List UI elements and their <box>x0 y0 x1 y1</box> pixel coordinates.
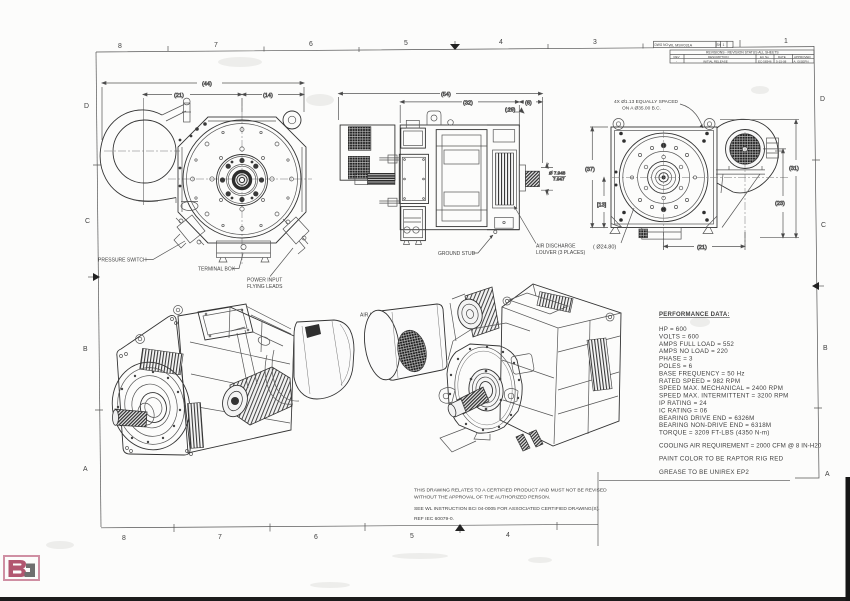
svg-text:IC RATING = 06: IC RATING = 06 <box>659 407 708 414</box>
svg-text:6: 6 <box>309 41 313 48</box>
svg-text:POLES = 6: POLES = 6 <box>659 363 693 370</box>
svg-text:BEARING NON-DRIVE END = 6318M: BEARING NON-DRIVE END = 6318M <box>659 422 771 429</box>
svg-text:RATED SPEED = 982 RPM: RATED SPEED = 982 RPM <box>659 378 740 385</box>
svg-text:BEARING DRIVE END = 6326M: BEARING DRIVE END = 6326M <box>659 415 754 422</box>
svg-text:A: A <box>83 466 88 473</box>
svg-text:B: B <box>83 346 88 353</box>
svg-text:(14): (14) <box>263 93 273 99</box>
svg-text:INITIAL RELEASE: INITIAL RELEASE <box>703 59 728 63</box>
svg-text:4: 4 <box>499 39 503 46</box>
svg-text:GREASE TO BE UNIREX EP2: GREASE TO BE UNIREX EP2 <box>659 469 749 476</box>
svg-text:6: 6 <box>314 534 318 541</box>
svg-text:1: 1 <box>723 43 725 47</box>
svg-text:4: 4 <box>506 532 510 539</box>
svg-text:HP = 600: HP = 600 <box>659 326 687 333</box>
svg-text:5-15-08: 5-15-08 <box>776 59 787 63</box>
svg-text:( Ø24.80): ( Ø24.80) <box>593 245 616 251</box>
svg-text:(21): (21) <box>697 245 707 251</box>
svg-text:C: C <box>85 218 90 225</box>
svg-text:8: 8 <box>118 43 122 50</box>
svg-text:3: 3 <box>593 39 597 46</box>
svg-text:POWER INPUT: POWER INPUT <box>247 278 282 284</box>
svg-text:(32): (32) <box>463 100 473 106</box>
svg-text:5: 5 <box>410 533 414 540</box>
svg-text:ON A Ø35.00 B.C.: ON A Ø35.00 B.C. <box>622 106 661 112</box>
svg-text:AMPS FULL LOAD = 552: AMPS FULL LOAD = 552 <box>659 341 734 348</box>
svg-text:PERFORMANCE DATA:: PERFORMANCE DATA: <box>659 312 730 318</box>
svg-text:5: 5 <box>404 40 408 47</box>
svg-text:TORQUE = 3209 FT-LBS (4350 N-m: TORQUE = 3209 FT-LBS (4350 N-m) <box>659 430 770 437</box>
svg-text:SH: SH <box>717 43 722 47</box>
svg-text:REF IEC 60079-0.: REF IEC 60079-0. <box>414 516 454 522</box>
svg-text:IP RATING = 24: IP RATING = 24 <box>659 400 707 407</box>
svg-text:D: D <box>84 103 89 110</box>
svg-text:(23): (23) <box>775 201 785 207</box>
svg-text:7: 7 <box>218 534 222 541</box>
svg-text:PHASE = 3: PHASE = 3 <box>659 356 693 363</box>
svg-text:PRESSURE SWITCH: PRESSURE SWITCH <box>98 258 147 264</box>
svg-text:DWG NO: DWG NO <box>655 43 669 47</box>
svg-text:4X Ø1.13 EQUALLY SPACED: 4X Ø1.13 EQUALLY SPACED <box>614 99 679 105</box>
svg-text:C: C <box>821 222 826 229</box>
svg-text:7: 7 <box>214 42 218 49</box>
svg-text:(37): (37) <box>585 167 595 173</box>
svg-text:THIS DRAWING RELATES TO A CERT: THIS DRAWING RELATES TO A CERTIFIED PROD… <box>414 488 607 494</box>
svg-text:SPEED MAX. MECHANICAL = 2400 R: SPEED MAX. MECHANICAL = 2400 RPM <box>659 385 783 392</box>
svg-text:SPEED MAX. INTERMITTENT = 3200: SPEED MAX. INTERMITTENT = 3200 RPM <box>659 393 789 400</box>
svg-text:WL MSV031A: WL MSV031A <box>669 43 693 47</box>
svg-text:BASE FREQUENCY = 50 Hz: BASE FREQUENCY = 50 Hz <box>659 370 745 377</box>
svg-text:D: D <box>820 96 825 103</box>
svg-text:GROUND STUD: GROUND STUD <box>438 251 476 257</box>
svg-text:A. GISEPN: A. GISEPN <box>794 59 809 63</box>
svg-text:VOLTS = 600: VOLTS = 600 <box>659 333 699 340</box>
svg-text:(.29): (.29) <box>505 108 516 114</box>
svg-text:EC-58346: EC-58346 <box>758 59 772 63</box>
svg-text:AIR DISCHARGE: AIR DISCHARGE <box>536 244 576 250</box>
svg-text:B: B <box>823 345 828 352</box>
svg-text:1: 1 <box>784 38 788 45</box>
svg-text:A: A <box>825 471 830 478</box>
svg-text:TERMINAL BOX: TERMINAL BOX <box>198 267 236 273</box>
svg-text:(6): (6) <box>525 100 532 106</box>
svg-text:AMPS NO LOAD = 220: AMPS NO LOAD = 220 <box>659 348 728 355</box>
svg-text:WITHOUT THE APPROVAL OF THE AU: WITHOUT THE APPROVAL OF THE AUTHORIZED P… <box>414 495 550 501</box>
svg-text:(31): (31) <box>789 166 799 172</box>
svg-text:(21): (21) <box>174 93 184 99</box>
svg-text:(54): (54) <box>441 92 451 98</box>
svg-text:LOUVER (3 PLACES): LOUVER (3 PLACES) <box>536 250 586 256</box>
svg-text:COOLING AIR REQUIREMENT = 2000: COOLING AIR REQUIREMENT = 2000 CFM @ 8 I… <box>659 443 822 450</box>
svg-text:-: - <box>676 59 677 63</box>
svg-text:8: 8 <box>122 535 126 542</box>
svg-text:PAINT COLOR TO BE RAPTOR RIG R: PAINT COLOR TO BE RAPTOR RIG RED <box>659 456 784 463</box>
svg-text:(44): (44) <box>202 82 212 88</box>
svg-text:7.947: 7.947 <box>553 177 565 182</box>
svg-text:Ø 7.948: Ø 7.948 <box>549 171 566 176</box>
svg-text:[13]: [13] <box>597 203 607 209</box>
svg-text:FLYING LEADS: FLYING LEADS <box>247 284 283 290</box>
svg-text:SEE WL INSTRUCTION BCI 04-0005: SEE WL INSTRUCTION BCI 04-0005 FOR ASSOC… <box>414 506 600 512</box>
